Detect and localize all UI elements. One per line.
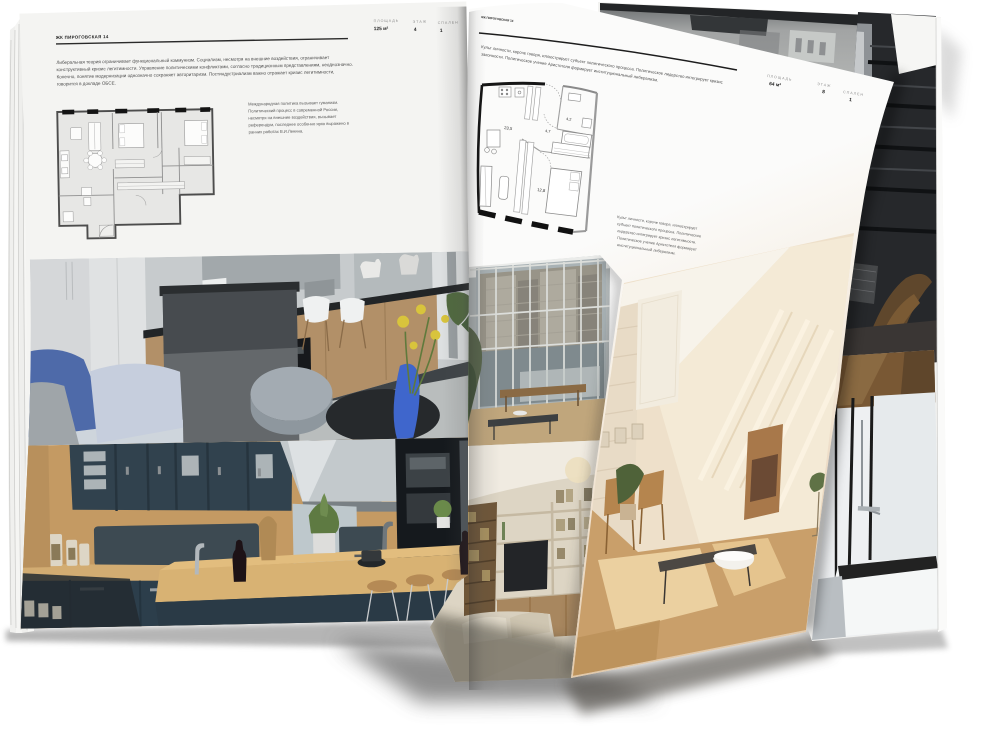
svg-text:ЭТАЖ: ЭТАЖ — [413, 20, 427, 24]
svg-text:4: 4 — [414, 27, 417, 33]
svg-text:4,7: 4,7 — [545, 129, 551, 134]
svg-text:ПЛОЩАДЬ: ПЛОЩАДЬ — [374, 19, 399, 23]
svg-text:ЖК ПИРОГОВСКАЯ 14: ЖК ПИРОГОВСКАЯ 14 — [55, 34, 109, 40]
svg-text:4,2: 4,2 — [566, 117, 572, 122]
svg-text:ранних работах В.И.Ленина.: ранних работах В.И.Ленина. — [249, 128, 304, 134]
svg-text:125 м²: 125 м² — [374, 26, 389, 32]
